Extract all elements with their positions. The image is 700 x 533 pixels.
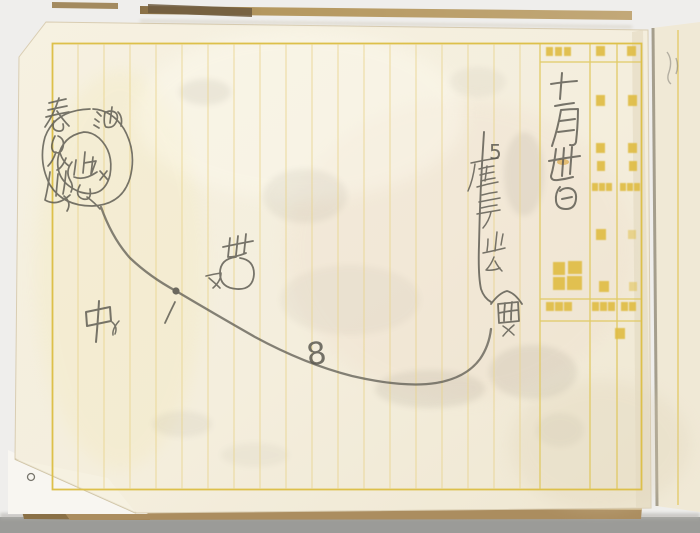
notebook-page [15, 22, 690, 513]
scan-canvas: 8 5 [0, 0, 700, 533]
junction-dot [172, 287, 179, 294]
scanned-notebook-page: 8 5 [0, 0, 700, 533]
form-tally-cell [615, 328, 625, 339]
note-number-five: 5 [489, 140, 502, 164]
